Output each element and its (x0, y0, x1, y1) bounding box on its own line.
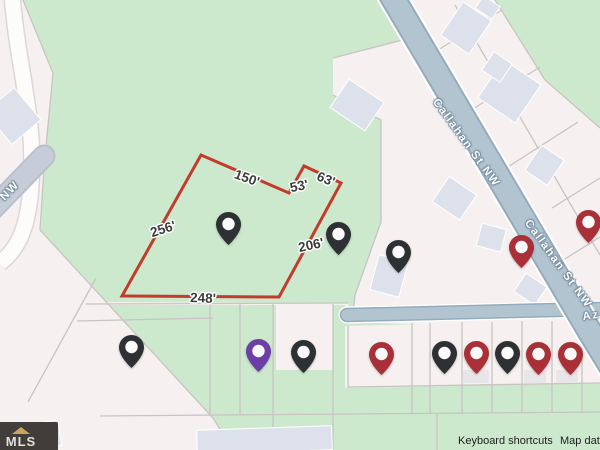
keyboard-shortcuts-link[interactable]: Keyboard shortcuts (458, 435, 553, 447)
map-pin-red-13[interactable] (526, 342, 551, 375)
map-pin-black-1[interactable] (216, 212, 241, 245)
map-pin-red-5[interactable] (576, 210, 600, 243)
map-pin-red-14[interactable] (558, 342, 583, 375)
mls-watermark: MLS (0, 422, 58, 450)
map-pin-black-12[interactable] (495, 341, 520, 374)
map-canvas[interactable]: 150'53'63'256'206'248'Callahan St NWCall… (0, 0, 600, 450)
map-pin-purple-7[interactable] (246, 339, 271, 372)
map-pin-red-4[interactable] (509, 235, 534, 268)
map-pin-black-2[interactable] (326, 222, 351, 255)
map-base-layer (0, 0, 600, 450)
map-pin-red-11[interactable] (464, 341, 489, 374)
map-pin-black-10[interactable] (432, 341, 457, 374)
map-pin-red-9[interactable] (369, 342, 394, 375)
map-data-attribution: Map data (560, 435, 600, 447)
mls-watermark-text: MLS (6, 435, 36, 448)
map-pin-black-6[interactable] (119, 335, 144, 368)
map-pin-black-8[interactable] (291, 340, 316, 373)
map-pin-black-3[interactable] (386, 240, 411, 273)
mls-logo-peak-icon (12, 427, 30, 434)
